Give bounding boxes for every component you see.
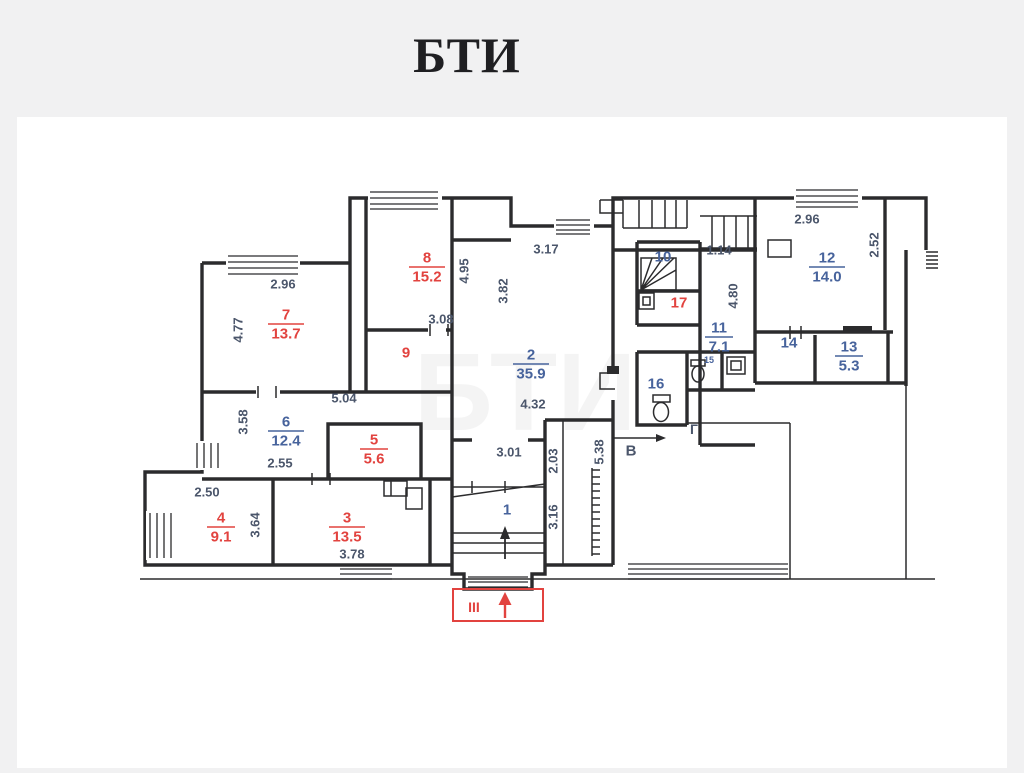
room-number-12: 12: [819, 250, 836, 267]
dimension-3.82-5: 3.82: [496, 278, 511, 303]
marker-III: III: [468, 599, 480, 615]
dimension-4.95-2: 4.95: [457, 258, 472, 283]
room-area-5: 5.6: [364, 451, 385, 468]
room-number-17: 17: [671, 295, 688, 312]
shower-tray-icon: [727, 357, 745, 374]
dimension-5.38-20: 5.38: [592, 439, 607, 464]
dimension-3.16-19: 3.16: [546, 504, 561, 529]
dimension-4.80-7: 4.80: [726, 283, 741, 308]
dimension-5.04-10: 5.04: [331, 391, 357, 406]
dimension-2.52-9: 2.52: [867, 232, 882, 257]
dimension-2.50-13: 2.50: [194, 485, 219, 500]
room-number-9: 9: [402, 345, 410, 362]
dimension-2.96-8: 2.96: [794, 212, 819, 227]
dimension-2.55-12: 2.55: [267, 456, 292, 471]
page-title: БТИ: [0, 26, 979, 84]
room-area-3: 13.5: [332, 529, 361, 546]
room-number-4: 4: [217, 510, 226, 527]
dimension-3.78-15: 3.78: [339, 547, 364, 562]
dimension-1.14-6: 1.14: [706, 243, 732, 258]
room-number-1: 1: [503, 502, 511, 519]
marker-В: В: [626, 443, 637, 460]
room-area-8: 15.2: [412, 269, 441, 286]
room-number-16: 16: [648, 376, 665, 393]
room-number-13: 13: [841, 339, 858, 356]
dimension-4.77-1: 4.77: [231, 317, 246, 342]
plan-panel: БТИ: [17, 117, 1007, 768]
room-number-5: 5: [370, 432, 378, 449]
room-area-13: 5.3: [839, 358, 860, 375]
dimension-2.96-0: 2.96: [270, 277, 295, 292]
room-area-6: 12.4: [271, 433, 301, 450]
room-number-14: 14: [781, 335, 798, 352]
room-number-10: 10: [655, 249, 672, 266]
entrance-marker: [453, 589, 543, 621]
room-number-11: 11: [711, 320, 727, 337]
room-number-8: 8: [423, 250, 431, 267]
room-number-3: 3: [343, 510, 351, 527]
dimension-3.64-14: 3.64: [248, 512, 263, 538]
room-area-11: 7.1: [709, 339, 730, 356]
room-area-7: 13.7: [271, 326, 300, 343]
dimension-3.17-4: 3.17: [533, 242, 558, 257]
room-number-2: 2: [527, 347, 535, 364]
room-number-6: 6: [282, 414, 290, 431]
section-arrowhead: [656, 434, 666, 442]
floor-plan: БТИ: [17, 117, 1007, 768]
dimension-3.01-17: 3.01: [496, 445, 521, 460]
room-area-12: 14.0: [812, 269, 841, 286]
room-number-7: 7: [282, 307, 290, 324]
dimension-2.03-18: 2.03: [546, 448, 561, 473]
dimension-3.58-11: 3.58: [236, 409, 251, 434]
marker-Г: Г: [690, 421, 698, 437]
room-area-4: 9.1: [211, 529, 232, 546]
room-area-2: 35.9: [516, 366, 545, 383]
room-number-15: 15: [704, 355, 714, 365]
dimension-4.32-16: 4.32: [520, 397, 545, 412]
dimension-3.08-3: 3.08: [428, 312, 453, 327]
